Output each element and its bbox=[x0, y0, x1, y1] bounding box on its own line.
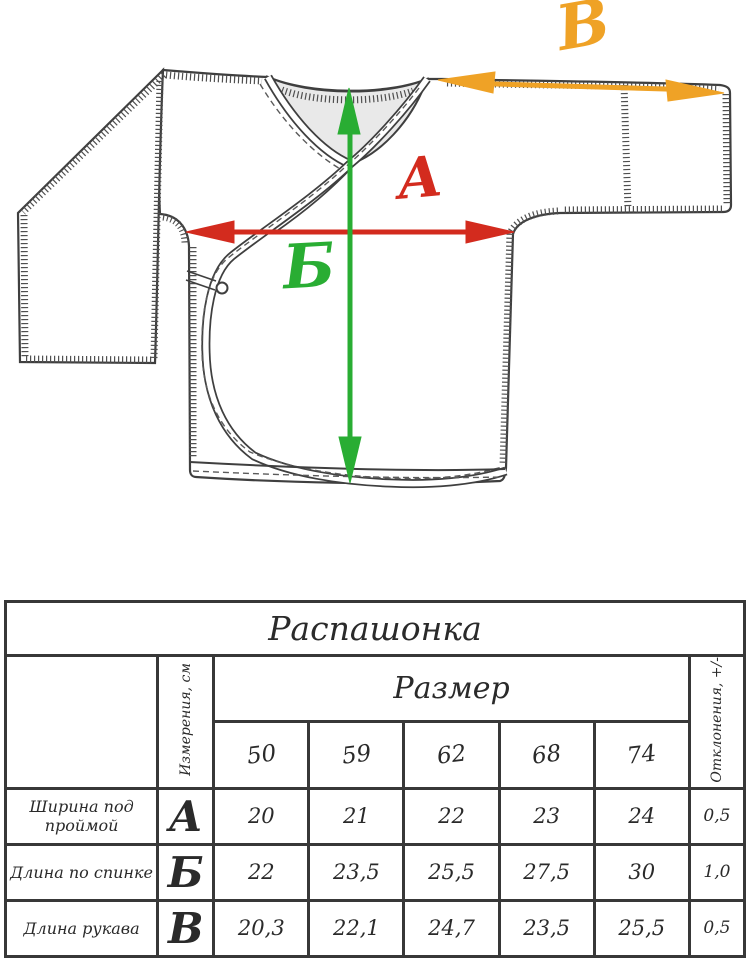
measurement-value-cell: 27,5 bbox=[499, 844, 594, 900]
measure-label-a: А bbox=[395, 148, 445, 208]
garment-body bbox=[18, 70, 731, 484]
measurement-value-cell: 24,7 bbox=[404, 900, 499, 956]
page: { "colors": { "a": "#d32b1e", "b": "#29a… bbox=[0, 0, 750, 958]
left-sleeve bbox=[18, 70, 163, 363]
empty-header-cell bbox=[6, 656, 158, 789]
measurement-value-cell: 23,5 bbox=[309, 844, 404, 900]
measurement-value-cell: 25,5 bbox=[594, 900, 689, 956]
measure-col-header: Измерения, см bbox=[158, 656, 214, 789]
table-header-row: Измерения, см Размер Отклонения, +/- bbox=[6, 656, 745, 722]
measurement-value-cell: 20,3 bbox=[214, 900, 309, 956]
table-row: Длина рукава В 20,3 22,1 24,7 23,5 25,5 … bbox=[6, 900, 745, 956]
deviation-value-cell: 1,0 bbox=[689, 844, 744, 900]
measurement-name-cell: Длина рукава bbox=[6, 900, 158, 956]
measurement-value-cell: 24 bbox=[594, 788, 689, 844]
measurement-name-cell: Длина по спинке bbox=[6, 844, 158, 900]
measurement-value-cell: 22 bbox=[214, 844, 309, 900]
deviation-col-header: Отклонения, +/- bbox=[689, 656, 744, 789]
table-row: Ширина под проймой А 20 21 22 23 24 0,5 bbox=[6, 788, 745, 844]
measure-label-b: Б bbox=[281, 235, 336, 299]
measurement-value-cell: 25,5 bbox=[404, 844, 499, 900]
table-title: Распашонка bbox=[6, 602, 745, 656]
deviation-value-cell: 0,5 bbox=[689, 788, 744, 844]
measurement-name-cell: Ширина под проймой bbox=[6, 788, 158, 844]
measurement-letter-cell: В bbox=[158, 900, 214, 956]
size-header-cell: 68 bbox=[499, 721, 594, 788]
size-header-cell: 62 bbox=[404, 721, 499, 788]
garment-sketch-svg bbox=[0, 0, 750, 596]
measure-label-v: В bbox=[552, 0, 614, 60]
size-header-cell: 50 bbox=[214, 721, 309, 788]
deviation-value-cell: 0,5 bbox=[689, 900, 744, 956]
table-row: Длина по спинке Б 22 23,5 25,5 27,5 30 1… bbox=[6, 844, 745, 900]
measurement-value-cell: 21 bbox=[309, 788, 404, 844]
measurement-letter-cell: Б bbox=[158, 844, 214, 900]
garment-sketch: А Б В bbox=[0, 0, 750, 596]
measurement-value-cell: 30 bbox=[594, 844, 689, 900]
measurement-letter-cell: А bbox=[158, 788, 214, 844]
measurement-value-cell: 20 bbox=[214, 788, 309, 844]
size-header-cell: 59 bbox=[309, 721, 404, 788]
size-header-cell: 74 bbox=[594, 721, 689, 788]
size-chart-table: Распашонка Измерения, см Размер Отклонен… bbox=[4, 600, 746, 958]
size-group-header: Размер bbox=[214, 656, 690, 722]
measurement-value-cell: 23,5 bbox=[499, 900, 594, 956]
table-title-row: Распашонка bbox=[6, 602, 745, 656]
measurement-value-cell: 23 bbox=[499, 788, 594, 844]
measurement-value-cell: 22,1 bbox=[309, 900, 404, 956]
measurement-value-cell: 22 bbox=[404, 788, 499, 844]
